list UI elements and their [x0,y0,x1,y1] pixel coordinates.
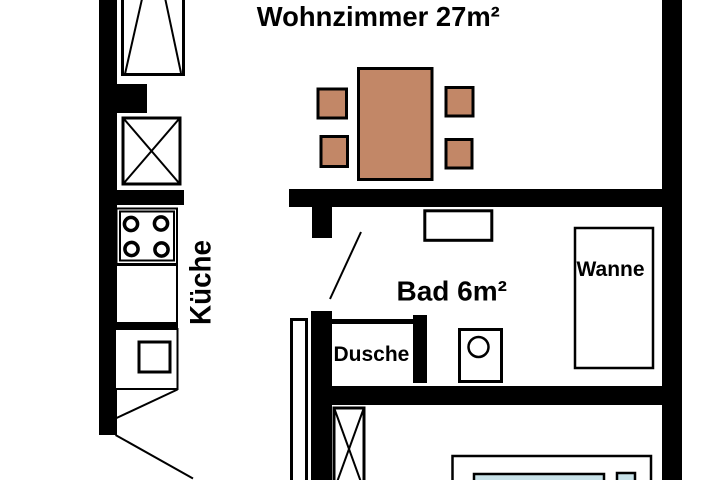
svg-text:Dusche: Dusche [334,343,410,366]
svg-text:Wohnzimmer 27m²: Wohnzimmer 27m² [257,1,500,32]
svg-text:Bad 6m²: Bad 6m² [397,276,507,307]
svg-text:Küche: Küche [185,240,218,325]
svg-text:Wanne: Wanne [577,258,645,281]
